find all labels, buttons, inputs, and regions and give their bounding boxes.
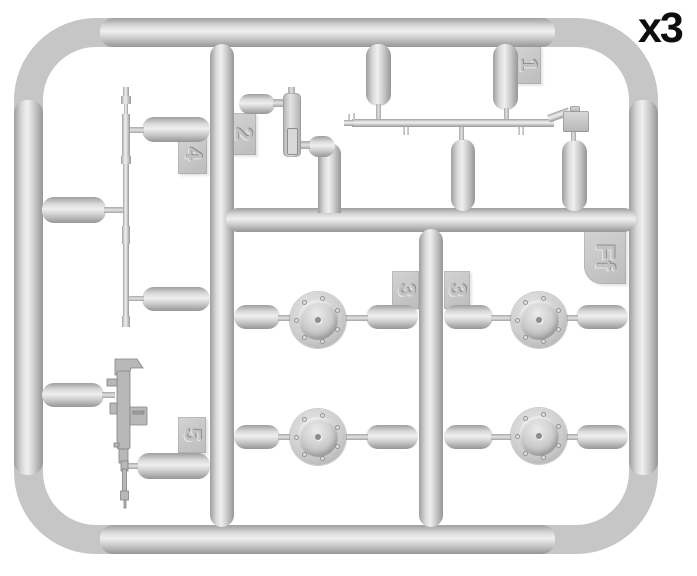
rod-leg [522, 127, 524, 135]
bolt-hole [320, 456, 325, 461]
part-machine-gun [95, 357, 155, 509]
connector-pill [562, 140, 587, 211]
bolt-hole [294, 318, 299, 323]
gun-barrel [123, 469, 127, 493]
bolt-hole [523, 335, 528, 340]
sprue-frame-top [100, 18, 555, 47]
quantity-label: x3 [638, 4, 682, 53]
connector-stub [376, 104, 381, 120]
connector-stub [491, 434, 513, 440]
bolt-hole [335, 308, 340, 313]
rod-pin [348, 114, 350, 120]
dome-center-hole [315, 434, 321, 440]
connector-stub [344, 315, 368, 321]
connector-pill [444, 425, 493, 449]
part-dome-hatch-2 [290, 409, 346, 465]
connector-pill [366, 425, 418, 449]
connector-pill [142, 117, 210, 142]
barrel-segment [123, 244, 129, 316]
connector-stub [459, 126, 464, 140]
gun-ammo-box [130, 407, 147, 425]
connector-pill [444, 305, 493, 329]
part-dome-hatch-3 [511, 292, 567, 348]
barrel-segment [122, 226, 130, 244]
connector-pill [366, 305, 418, 329]
bolt-hole [335, 327, 340, 332]
bolt-hole [320, 339, 325, 344]
barrel-segment [122, 316, 130, 327]
bolt-hole [556, 443, 561, 448]
runner-vertical-center [419, 229, 443, 527]
gun-muzzle-tip [124, 500, 126, 508]
barrel-segment [123, 87, 129, 96]
dome-center-hole [315, 317, 321, 323]
connector-pill [308, 136, 335, 157]
sprue-frame-bottom [100, 525, 555, 554]
barrel-segment [123, 164, 129, 226]
rod-end-block [563, 111, 589, 132]
bolt-hole [302, 452, 307, 457]
bolt-hole [302, 335, 307, 340]
rod-leg [407, 127, 409, 135]
connector-pill [234, 305, 280, 329]
barrel-segment [122, 114, 130, 156]
bolt-hole [541, 339, 546, 344]
bolt-hole [515, 434, 520, 439]
gun-receiver [117, 371, 130, 449]
sprue-diagram: x3 1 2 3 3 4 5 Ff [0, 0, 697, 576]
connector-pill [493, 44, 518, 110]
bolt-hole [556, 327, 561, 332]
dome-center-hole [536, 317, 542, 323]
dome-center-hole [536, 433, 542, 439]
bolt-hole [335, 444, 340, 449]
bracket-right-stub [301, 141, 310, 149]
bolt-hole [556, 308, 561, 313]
connector-pill [42, 197, 106, 223]
bolt-hole [556, 424, 561, 429]
runner-vertical-left [210, 44, 234, 527]
rod-leg [518, 127, 520, 135]
bolt-hole [515, 318, 520, 323]
rod-muzzle [344, 120, 354, 126]
connector-pill [366, 44, 391, 106]
bracket-slot [287, 128, 298, 155]
rod-tube [352, 119, 554, 127]
connector-pill [576, 305, 628, 329]
connector-stub [491, 315, 513, 321]
rod-leg [403, 127, 405, 135]
bolt-hole [541, 455, 546, 460]
sprue-frame-right [629, 100, 658, 475]
gun-pin [114, 443, 119, 447]
bolt-hole [294, 435, 299, 440]
bolt-hole [523, 451, 528, 456]
connector-pill [576, 425, 628, 449]
gun-ammo-detail [133, 411, 144, 414]
gun-handle [107, 379, 117, 386]
part-dome-hatch-4 [511, 408, 567, 464]
connector-pill [142, 287, 210, 311]
barrel-segment [121, 156, 131, 164]
rod-end-nub [570, 106, 580, 112]
rod-pin [353, 113, 355, 120]
sprue-frame-left [14, 100, 43, 475]
bolt-hole [335, 425, 340, 430]
gun-muzzle [121, 491, 129, 500]
connector-pill [451, 139, 475, 211]
barrel-segment [121, 96, 131, 104]
barrel-segment [124, 104, 128, 114]
gun-knob [110, 403, 117, 414]
part-dome-hatch-1 [290, 292, 346, 348]
connector-pill [234, 425, 280, 449]
connector-stub [344, 434, 368, 440]
connector-pill [239, 94, 275, 114]
part-barrel-rod [119, 87, 133, 327]
